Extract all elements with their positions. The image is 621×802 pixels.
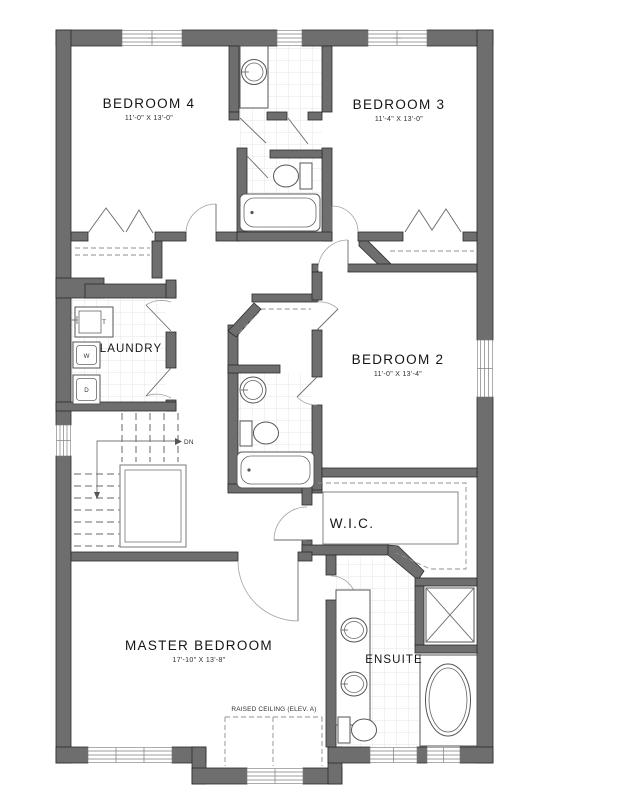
wall (192, 768, 247, 784)
raised-ceiling-outline (225, 717, 322, 766)
wall (417, 747, 427, 763)
wall (56, 30, 71, 425)
window (122, 31, 182, 46)
wall (152, 241, 162, 278)
wall (237, 232, 332, 241)
wall (322, 148, 332, 241)
wall (228, 365, 280, 373)
window (368, 31, 427, 46)
washer-label: W (84, 353, 90, 360)
wall (267, 112, 287, 120)
wall (252, 294, 318, 302)
wall (71, 552, 238, 561)
bedroom3-door (332, 206, 358, 232)
window (88, 748, 172, 763)
soaker-tub (420, 655, 477, 746)
wall (216, 232, 240, 241)
bedroom2-door (318, 240, 348, 270)
stair-well (120, 465, 186, 547)
wall (415, 578, 477, 586)
wall (155, 232, 186, 241)
bedroom4-dims: 11'-0" X 13'-0" (125, 115, 173, 122)
bedroom4-door (186, 204, 216, 232)
wall (166, 332, 176, 368)
wall (71, 232, 88, 241)
raised-ceiling-label: RAISED CEILING (ELEV. A) (231, 706, 316, 713)
wall (460, 747, 493, 763)
stairs-down-label: DN (184, 439, 194, 446)
laundry-label: LAUNDRY (100, 343, 162, 355)
wall (463, 232, 477, 241)
wall (415, 586, 424, 645)
wall (312, 330, 322, 377)
wall (312, 272, 322, 300)
wall (85, 284, 176, 298)
wall (326, 600, 336, 747)
bedroom2-closet-door (317, 302, 338, 330)
floor-plan-page: DN T W D (0, 0, 621, 802)
wall (56, 456, 71, 763)
washer: W (73, 342, 100, 368)
master-door (238, 561, 298, 621)
bedroom4-closet-double-doors (88, 208, 153, 233)
wall (228, 303, 261, 337)
wall (308, 112, 322, 120)
wic-door (274, 507, 307, 540)
wall (328, 747, 370, 763)
wall (348, 264, 477, 272)
toilet (338, 717, 377, 743)
bathtub (237, 452, 314, 488)
wall (229, 46, 239, 112)
master-bedroom-label: MASTER BEDROOM (125, 638, 273, 653)
bedroom2-label: BEDROOM 2 (352, 352, 445, 367)
window (427, 748, 460, 763)
wall (302, 545, 388, 555)
wall (326, 555, 336, 575)
laundry-tub-label: T (102, 319, 106, 326)
wall (229, 112, 239, 120)
wall (182, 30, 277, 46)
wall (166, 280, 176, 298)
window (478, 340, 493, 397)
wall (312, 264, 318, 272)
window (247, 769, 303, 784)
floor-plan-canvas: DN T W D (0, 0, 621, 802)
shower (426, 588, 474, 642)
window (57, 425, 71, 456)
bath-sink (341, 618, 367, 642)
bedroom4-label: BEDROOM 4 (103, 96, 196, 111)
staircase: DN (74, 413, 194, 547)
bathtub (240, 194, 320, 231)
wall (358, 232, 403, 241)
bedroom3-dims: 11'-4" X 13'-0" (375, 116, 423, 123)
bath-sink (240, 377, 266, 403)
bedroom2-dims: 11'-0" X 13'-4" (374, 371, 422, 378)
bath-sink (242, 60, 267, 85)
master-bedroom-dims: 17'-10" X 13'-8" (173, 657, 226, 664)
wall (415, 645, 477, 653)
window (277, 31, 302, 46)
dryer: D (73, 375, 100, 404)
bedroom3-label: BEDROOM 3 (353, 97, 446, 112)
wall (477, 397, 493, 763)
wic-label: W.I.C. (330, 516, 375, 531)
wall (477, 30, 493, 340)
ensuite-label: ENSUITE (365, 654, 423, 666)
toilet (240, 421, 279, 446)
bedroom3-closet-bifold-doors (405, 209, 461, 232)
dryer-label: D (84, 387, 89, 394)
window (370, 748, 417, 763)
toilet (274, 163, 313, 189)
wall (270, 150, 322, 158)
wall (56, 747, 88, 763)
wall (298, 552, 312, 561)
bath-sink (341, 672, 367, 696)
wall (322, 468, 477, 477)
wall (322, 46, 332, 112)
wall (302, 30, 368, 46)
